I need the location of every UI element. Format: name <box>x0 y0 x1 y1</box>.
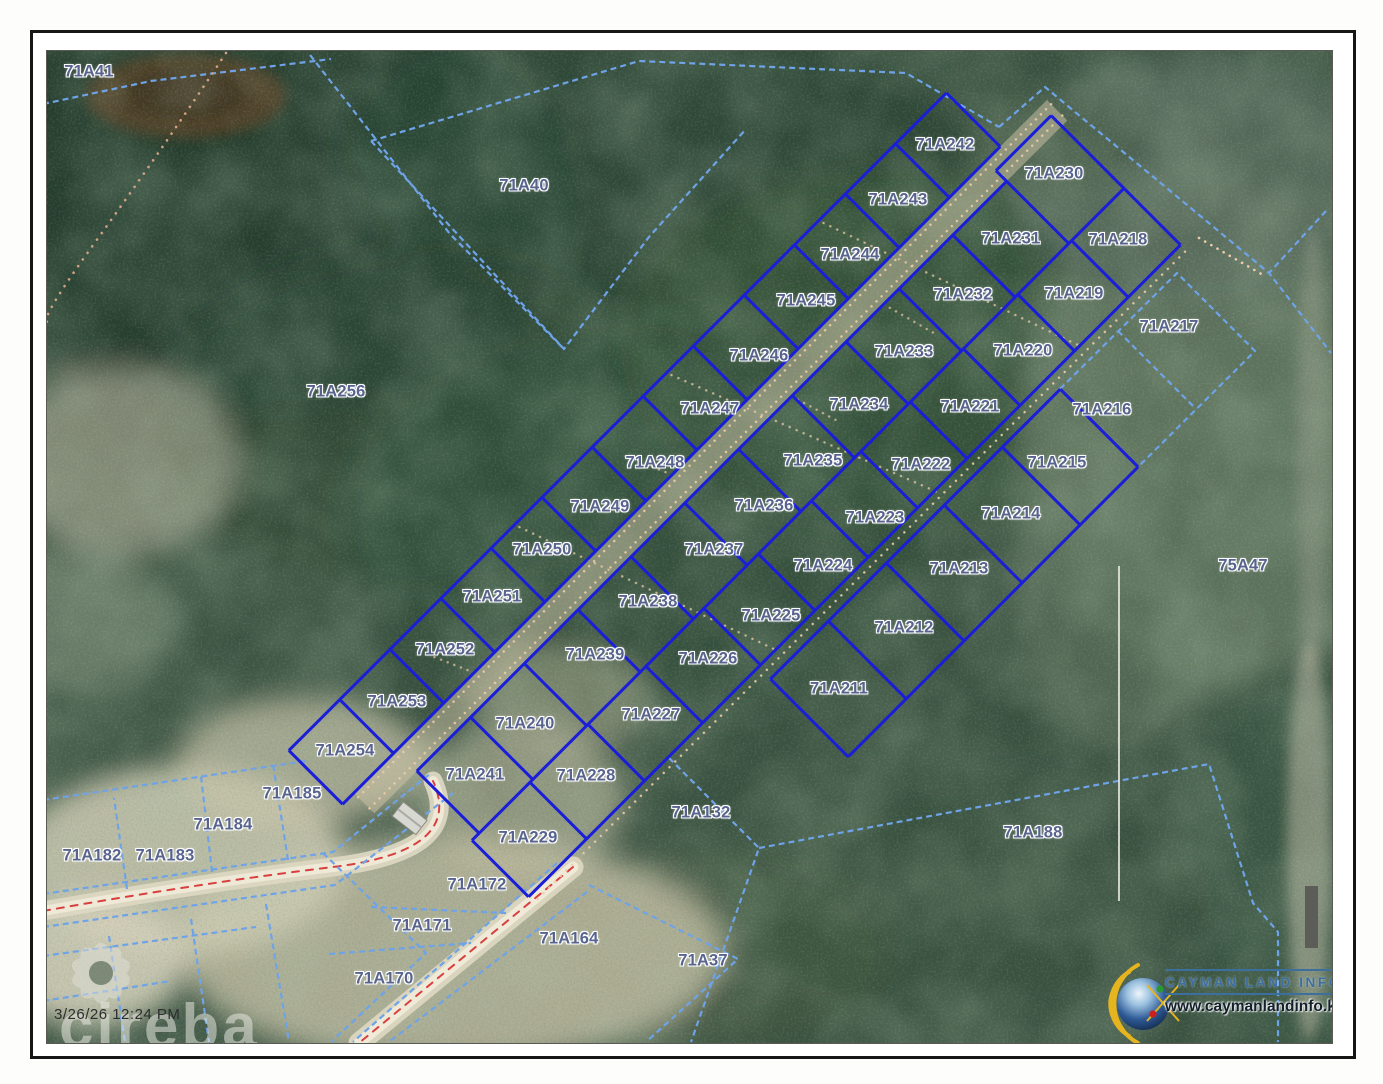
aerial-basemap <box>47 51 1332 1043</box>
cayman-land-info-logo[interactable]: CAYMAN LAND INFO www.caymanlandinfo.ky <box>1165 969 1331 1016</box>
logo-url[interactable]: www.caymanlandinfo.ky <box>1165 998 1331 1016</box>
printed-map-page: 71A4171A4071A25671A24271A24371A24471A245… <box>0 0 1383 1084</box>
terrain-layer <box>47 51 1332 1043</box>
logo-title: CAYMAN LAND INFO <box>1165 969 1331 995</box>
map-timestamp: 3/26/26 12:24 PM <box>54 1006 180 1023</box>
building-right-edge <box>1305 886 1318 948</box>
aerial-map-viewport[interactable]: 71A4171A4071A25671A24271A24371A24471A245… <box>46 50 1333 1044</box>
